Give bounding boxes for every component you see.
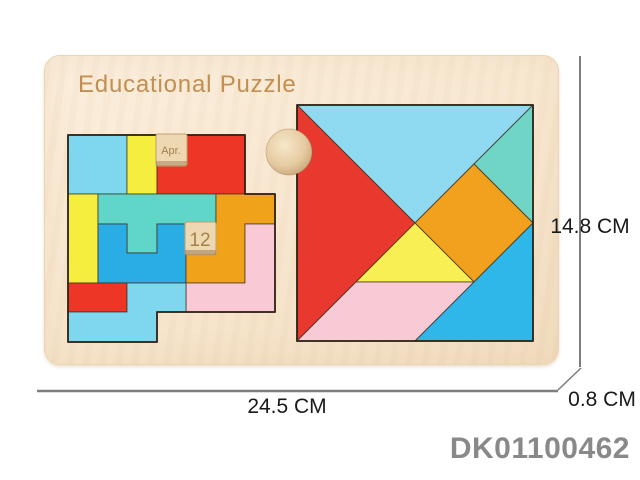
thickness-dimension-label: 0.8 CM — [560, 388, 640, 412]
piece-cyan-square — [68, 135, 127, 194]
height-dimension-label: 14.8 CM — [537, 215, 640, 239]
thickness-dimension-line — [558, 368, 581, 390]
finger-notch — [266, 129, 312, 175]
width-dimension-label: 24.5 CM — [237, 395, 337, 419]
piece-red-bar-bottom — [68, 283, 127, 312]
month-tile-label: Apr. — [161, 145, 181, 157]
date-tile-label: 12 — [189, 230, 210, 251]
tangram-puzzle — [297, 105, 533, 341]
product-photo: Educational Puzzle — [0, 0, 640, 480]
product-code: DK01100462 — [430, 432, 630, 466]
month-tile: Apr. — [156, 134, 187, 166]
piece-yellow-bar-top — [127, 135, 157, 194]
piece-yellow-bar-left — [68, 194, 98, 283]
date-tile: 12 — [185, 222, 216, 255]
